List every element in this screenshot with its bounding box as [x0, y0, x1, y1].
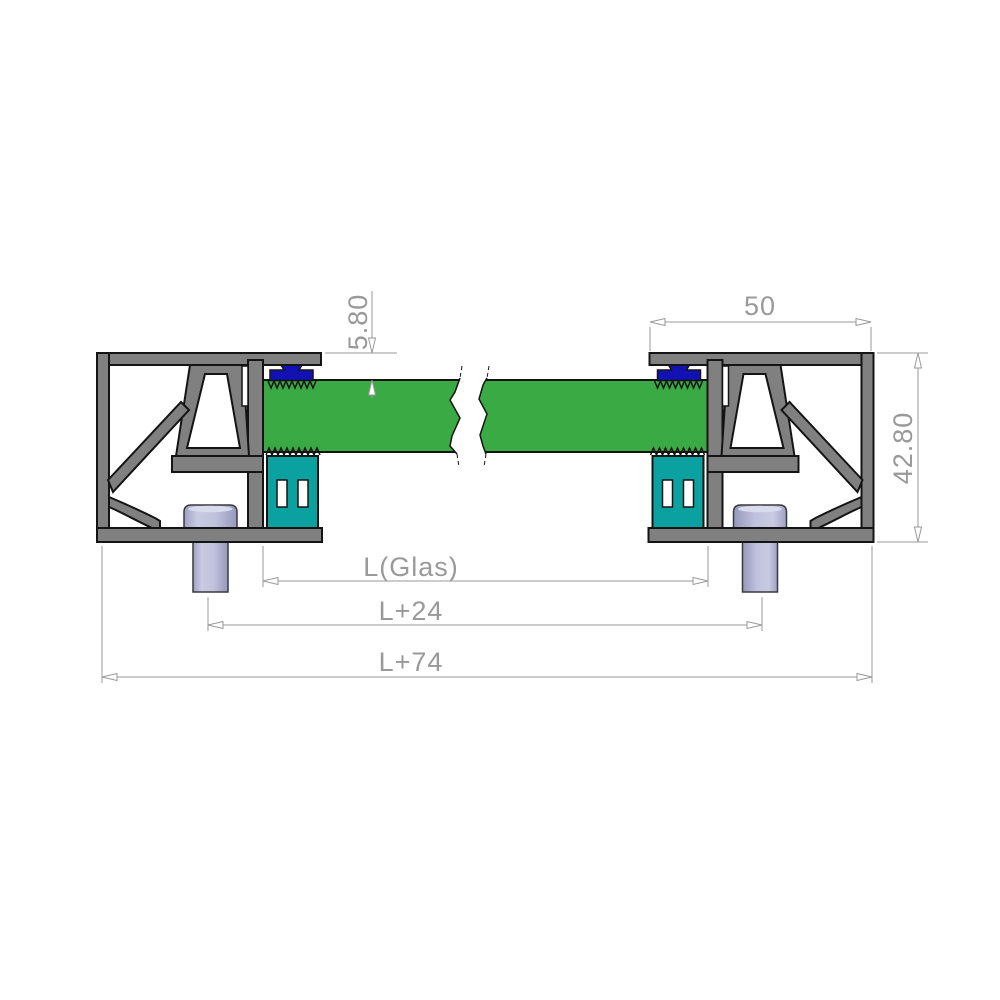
dimensions: 5.80 50 42.80 L(Glas)	[102, 291, 928, 683]
arrowhead	[856, 319, 871, 326]
dimension-profile-width: 50	[650, 291, 871, 351]
arrowhead	[915, 353, 922, 368]
arrowhead	[747, 622, 762, 629]
dimension-profile-height: 42.80	[877, 353, 928, 542]
profile-inner-wall	[248, 360, 263, 528]
screw-shaft	[193, 542, 228, 592]
dimension-label-length-plus-74: L+74	[379, 647, 444, 677]
arrowhead	[915, 527, 922, 542]
extension-line	[208, 597, 762, 631]
arrowhead	[693, 578, 708, 585]
arrowhead	[102, 674, 117, 681]
profile-bottom-plate	[97, 528, 322, 542]
arrowhead	[263, 578, 278, 585]
dimension-label-profile-width: 50	[744, 291, 776, 321]
profile-cross-bar	[172, 456, 263, 472]
arrowhead	[650, 319, 665, 326]
fixing-screw	[184, 505, 237, 592]
dimension-label-profile-height: 42.80	[888, 412, 918, 485]
extension-line	[650, 327, 871, 351]
dimension-label-glass-inset: 5.80	[343, 294, 373, 351]
dimension-label-glass-length: L(Glas)	[363, 552, 459, 582]
arrowhead	[208, 622, 223, 629]
dimension-glass-length: L(Glas)	[263, 546, 708, 587]
profile-slot-notch	[242, 366, 248, 406]
arrowhead	[857, 674, 872, 681]
glass-panel	[263, 366, 708, 467]
screw-head-highlight	[189, 506, 233, 512]
technical-drawing-canvas: 5.80 50 42.80 L(Glas)	[0, 0, 1000, 1000]
profile-outer-wall	[97, 353, 109, 542]
profile-bottom-flap	[109, 497, 160, 528]
dimension-length-plus-24: L+24	[208, 596, 762, 631]
setting-block	[267, 456, 318, 528]
profile-top-plate	[97, 353, 321, 365]
setting-block-slot	[298, 480, 308, 507]
setting-block-slot	[277, 480, 287, 507]
dimension-label-length-plus-24: L+24	[379, 596, 444, 626]
